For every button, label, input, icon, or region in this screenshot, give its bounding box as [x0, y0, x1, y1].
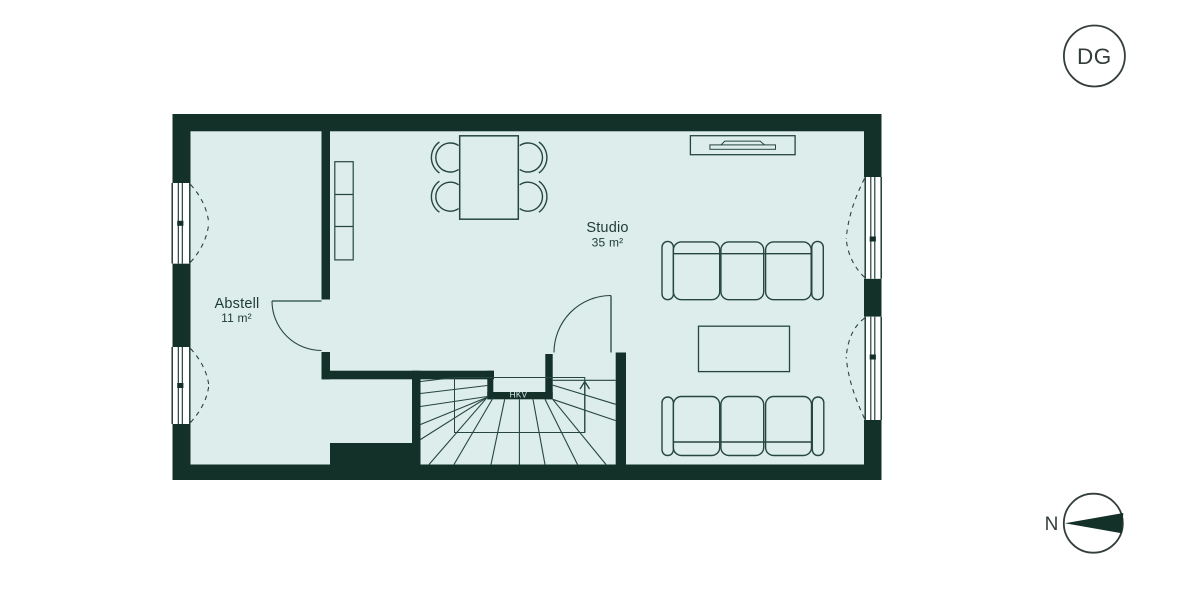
svg-text:N: N — [1045, 514, 1059, 535]
svg-text:Abstell: Abstell — [215, 296, 260, 312]
svg-text:11 m²: 11 m² — [221, 311, 252, 325]
svg-text:HKV: HKV — [510, 391, 528, 400]
svg-text:DG: DG — [1077, 44, 1112, 69]
svg-text:35 m²: 35 m² — [592, 236, 624, 250]
svg-text:Studio: Studio — [586, 220, 628, 236]
